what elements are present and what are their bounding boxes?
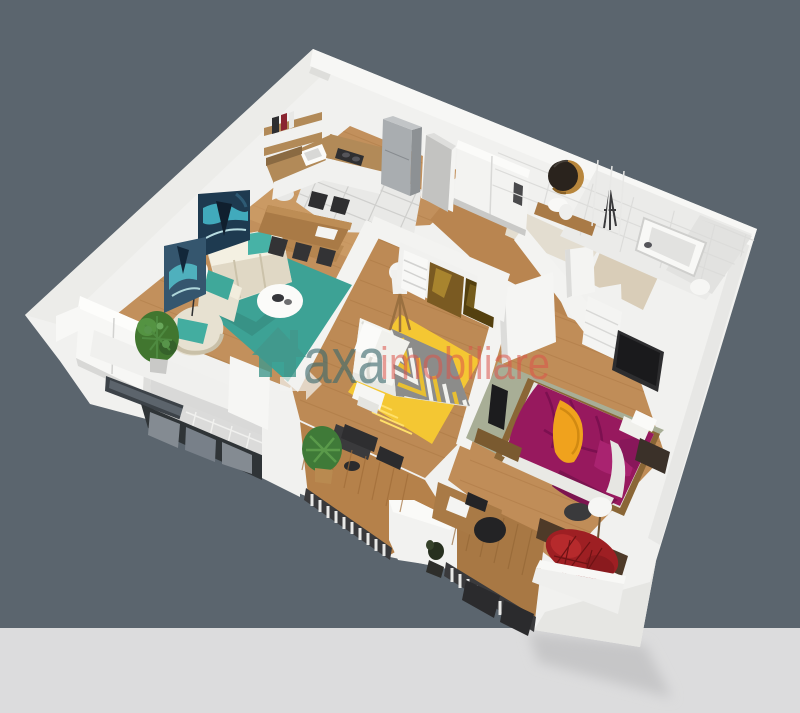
svg-text:axa: axa <box>303 325 386 397</box>
svg-text:imobiliare: imobiliare <box>380 338 550 389</box>
